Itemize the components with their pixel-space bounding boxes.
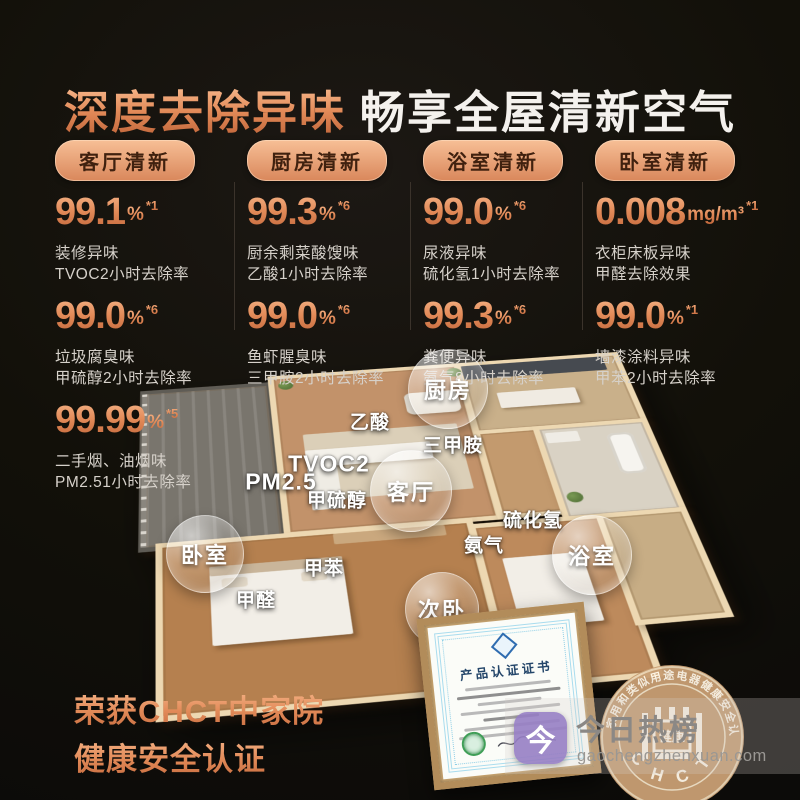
stat-odor-line: 垃圾腐臭味 — [55, 347, 247, 368]
stat-value-row: 99.0%*1 — [595, 296, 755, 344]
stat-unit: % — [127, 204, 144, 225]
stat-unit: % — [127, 308, 144, 329]
stat-value: 0.008 — [595, 191, 685, 233]
room-badge-label: 浴室清新 — [447, 152, 539, 174]
stat-footnote: *6 — [514, 302, 526, 317]
stat-unit: % — [319, 308, 336, 329]
stat-list: 0.008mg/m³*1 衣柜床板异味 甲醛去除效果 99.0%*1 墙漆涂料异… — [595, 192, 755, 389]
stat-block: 99.1%*1 装修异味 TVOC2小时去除率 — [55, 192, 247, 285]
stat-value-row: 99.0%*6 — [423, 192, 595, 240]
title-main: 畅享全屋清新空气 — [360, 87, 736, 138]
stat-list: 99.0%*6 尿液异味 硫化氢1小时去除率 99.3%*6 粪便异味 氨气8小… — [423, 192, 595, 389]
stat-footnote: *1 — [686, 302, 698, 317]
room-badge-label: 卧室清新 — [619, 152, 711, 174]
stat-removal-line: 硫化氢1小时去除率 — [423, 264, 595, 285]
stat-odor-line: 尿液异味 — [423, 243, 595, 264]
room-badge-label: 厨房清新 — [271, 152, 363, 174]
stat-block: 0.008mg/m³*1 衣柜床板异味 甲醛去除效果 — [595, 192, 755, 285]
wardrobe — [333, 525, 447, 545]
stat-footnote: *1 — [746, 198, 758, 213]
stat-value: 99.1 — [55, 191, 125, 233]
title-accent: 深度去除异味 — [64, 87, 346, 138]
stat-block: 99.0%*6 鱼虾腥臭味 三甲胺2小时去除率 — [247, 296, 423, 389]
stat-unit: % — [495, 204, 512, 225]
stat-odor-line: 装修异味 — [55, 243, 247, 264]
stat-odor-line: 衣柜床板异味 — [595, 243, 755, 264]
stat-column: 客厅清新 99.1%*1 装修异味 TVOC2小时去除率 99.0%*6 垃圾腐… — [55, 140, 247, 493]
watermark-domain: gaochengzhenxuan.com — [577, 747, 767, 766]
stat-removal-line: 三甲胺2小时去除率 — [247, 368, 423, 389]
stat-value-row: 99.3%*6 — [423, 296, 595, 344]
stat-column: 卧室清新 0.008mg/m³*1 衣柜床板异味 甲醛去除效果 99.0%*1 … — [595, 140, 755, 493]
stat-footnote: *1 — [146, 198, 158, 213]
stat-footnote: *6 — [338, 198, 350, 213]
award-line-1: 荣获CHCT中家院 — [74, 688, 324, 736]
stat-block: 99.0%*6 垃圾腐臭味 甲硫醇2小时去除率 — [55, 296, 247, 389]
watermark-brand: 今日热榜 — [576, 707, 700, 749]
stat-value-row: 99.0%*6 — [247, 296, 423, 344]
stat-odor-line: 厨余剩菜酸馊味 — [247, 243, 423, 264]
stat-unit: mg/m³ — [687, 204, 744, 225]
stat-column: 浴室清新 99.0%*6 尿液异味 硫化氢1小时去除率 99.3%*6 粪便异味… — [423, 140, 595, 493]
stat-odor-line: 墙漆涂料异味 — [595, 347, 755, 368]
stat-block: 99.3%*6 粪便异味 氨气8小时去除率 — [423, 296, 595, 389]
stat-removal-line: 氨气8小时去除率 — [423, 368, 595, 389]
watermark-logo-glyph: 今 — [526, 716, 556, 760]
stat-list: 99.1%*1 装修异味 TVOC2小时去除率 99.0%*6 垃圾腐臭味 甲硫… — [55, 192, 247, 493]
stat-unit: % — [667, 308, 684, 329]
stat-removal-line: 甲苯2小时去除率 — [595, 368, 755, 389]
stat-value: 99.0 — [423, 191, 493, 233]
stat-block: 99.99%*5 二手烟、油烟味 PM2.51小时去除率 — [55, 400, 247, 493]
stat-unit: % — [147, 412, 164, 433]
stat-value: 99.0 — [247, 295, 317, 337]
stat-removal-line: TVOC2小时去除率 — [55, 264, 247, 285]
stat-block: 99.0%*1 墙漆涂料异味 甲苯2小时去除率 — [595, 296, 755, 389]
promo-image: 深度去除异味畅享全屋清新空气 客厅清新 99.1%*1 装修异味 TVOC2小时… — [0, 0, 800, 800]
stat-removal-line: 甲硫醇2小时去除率 — [55, 368, 247, 389]
stat-value: 99.3 — [247, 191, 317, 233]
stat-value: 99.3 — [423, 295, 493, 337]
stat-value: 99.99 — [55, 399, 145, 441]
watermark-logo-icon: 今 — [514, 712, 567, 764]
stat-footnote: *5 — [166, 406, 178, 421]
award-text: 荣获CHCT中家院 健康安全认证 — [74, 688, 324, 784]
green-seal-icon — [461, 731, 487, 757]
room-badge: 浴室清新 — [423, 140, 563, 181]
stat-unit: % — [319, 204, 336, 225]
stat-removal-line: 甲醛去除效果 — [595, 264, 755, 285]
stat-block: 99.3%*6 厨余剩菜酸馊味 乙酸1小时去除率 — [247, 192, 423, 285]
stat-value-row: 99.0%*6 — [55, 296, 247, 344]
room-badge: 卧室清新 — [595, 140, 735, 181]
stat-footnote: *6 — [514, 198, 526, 213]
room-badge: 厨房清新 — [247, 140, 387, 181]
award-line-2: 健康安全认证 — [74, 736, 324, 784]
stat-unit: % — [495, 308, 512, 329]
stat-odor-line: 鱼虾腥臭味 — [247, 347, 423, 368]
stat-value-row: 99.1%*1 — [55, 192, 247, 240]
stat-odor-line: 二手烟、油烟味 — [55, 451, 247, 472]
stat-value-row: 0.008mg/m³*1 — [595, 192, 755, 240]
stat-removal-line: 乙酸1小时去除率 — [247, 264, 423, 285]
stat-column: 厨房清新 99.3%*6 厨余剩菜酸馊味 乙酸1小时去除率 99.0%*6 鱼虾… — [247, 140, 423, 493]
stat-block: 99.0%*6 尿液异味 硫化氢1小时去除率 — [423, 192, 595, 285]
stat-value-row: 99.3%*6 — [247, 192, 423, 240]
stats-grid: 客厅清新 99.1%*1 装修异味 TVOC2小时去除率 99.0%*6 垃圾腐… — [55, 140, 755, 493]
stat-list: 99.3%*6 厨余剩菜酸馊味 乙酸1小时去除率 99.0%*6 鱼虾腥臭味 三… — [247, 192, 423, 389]
stat-footnote: *6 — [338, 302, 350, 317]
stat-odor-line: 粪便异味 — [423, 347, 595, 368]
stat-value: 99.0 — [55, 295, 125, 337]
stat-value: 99.0 — [595, 295, 665, 337]
stat-removal-line: PM2.51小时去除率 — [55, 472, 247, 493]
certificate-logo-icon — [490, 632, 517, 659]
stat-value-row: 99.99%*5 — [55, 400, 247, 448]
page-title: 深度去除异味畅享全屋清新空气 — [0, 76, 800, 141]
room-badge: 客厅清新 — [55, 140, 195, 181]
stat-footnote: *6 — [146, 302, 158, 317]
room-badge-label: 客厅清新 — [79, 152, 171, 174]
